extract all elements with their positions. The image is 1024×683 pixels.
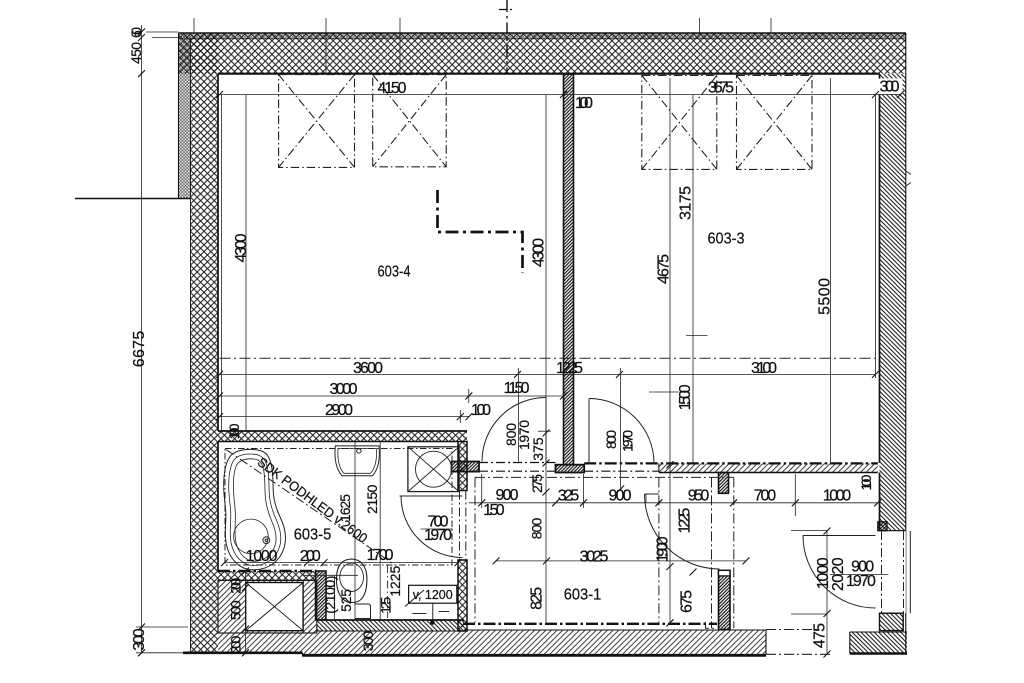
svg-text:1150: 1150 <box>504 380 530 397</box>
svg-text:1000: 1000 <box>823 488 851 505</box>
svg-text:603-5: 603-5 <box>294 527 332 544</box>
svg-text:4150: 4150 <box>378 80 407 97</box>
svg-text:603-3: 603-3 <box>708 231 745 248</box>
svg-text:100: 100 <box>471 402 491 419</box>
svg-text:675: 675 <box>679 590 696 613</box>
svg-text:1970: 1970 <box>424 527 452 544</box>
svg-text:375: 375 <box>530 437 546 461</box>
svg-text:3175: 3175 <box>678 186 695 220</box>
svg-text:1225: 1225 <box>387 565 403 596</box>
svg-text:1900: 1900 <box>655 536 672 562</box>
svg-text:100: 100 <box>858 474 874 490</box>
svg-text:5500: 5500 <box>817 278 834 315</box>
svg-text:1970: 1970 <box>620 430 636 452</box>
svg-text:1225: 1225 <box>556 360 583 377</box>
svg-text:4675: 4675 <box>656 254 673 284</box>
svg-text:325: 325 <box>558 488 580 505</box>
svg-text:125: 125 <box>377 597 393 614</box>
svg-text:1500: 1500 <box>677 384 694 410</box>
svg-text:603-1: 603-1 <box>564 587 602 604</box>
svg-text:1970: 1970 <box>846 573 876 590</box>
svg-text:300: 300 <box>131 628 148 650</box>
svg-text:475: 475 <box>812 623 829 648</box>
svg-text:3600: 3600 <box>353 360 383 377</box>
svg-text:800: 800 <box>603 430 619 449</box>
svg-text:4300: 4300 <box>531 238 548 267</box>
svg-text:2900: 2900 <box>325 402 353 419</box>
svg-text:825: 825 <box>529 587 546 610</box>
svg-text:1625: 1625 <box>337 494 353 522</box>
svg-text:300: 300 <box>360 631 376 652</box>
svg-text:3025: 3025 <box>580 548 609 565</box>
svg-text:100: 100 <box>575 95 593 112</box>
svg-text:500: 500 <box>228 600 244 620</box>
svg-text:3000: 3000 <box>330 381 358 398</box>
svg-text:3100: 3100 <box>751 360 777 377</box>
svg-text:1000: 1000 <box>246 548 278 565</box>
svg-text:1700: 1700 <box>367 547 394 564</box>
svg-text:150: 150 <box>483 502 505 519</box>
svg-text:200: 200 <box>300 548 321 565</box>
svg-text:900: 900 <box>609 488 632 505</box>
svg-text:200: 200 <box>228 578 244 594</box>
svg-text:60: 60 <box>128 27 144 38</box>
svg-text:300: 300 <box>880 79 900 96</box>
svg-text:3675: 3675 <box>708 80 734 97</box>
svg-text:2020: 2020 <box>830 557 847 591</box>
svg-text:100: 100 <box>226 423 242 439</box>
svg-text:950: 950 <box>688 488 710 505</box>
svg-text:v, 1200: v, 1200 <box>413 587 453 602</box>
svg-text:2150: 2150 <box>364 484 380 514</box>
svg-text:525: 525 <box>338 589 354 612</box>
svg-text:200: 200 <box>228 636 244 654</box>
svg-text:275: 275 <box>529 474 545 493</box>
svg-text:6675: 6675 <box>131 331 148 368</box>
svg-text:1225: 1225 <box>677 508 694 534</box>
svg-text:450: 450 <box>128 42 144 64</box>
svg-text:700: 700 <box>754 488 776 505</box>
svg-text:(2100): (2100) <box>322 576 338 614</box>
svg-text:800: 800 <box>529 517 545 539</box>
svg-text:4300: 4300 <box>233 233 250 262</box>
svg-text:603-4: 603-4 <box>378 264 411 281</box>
